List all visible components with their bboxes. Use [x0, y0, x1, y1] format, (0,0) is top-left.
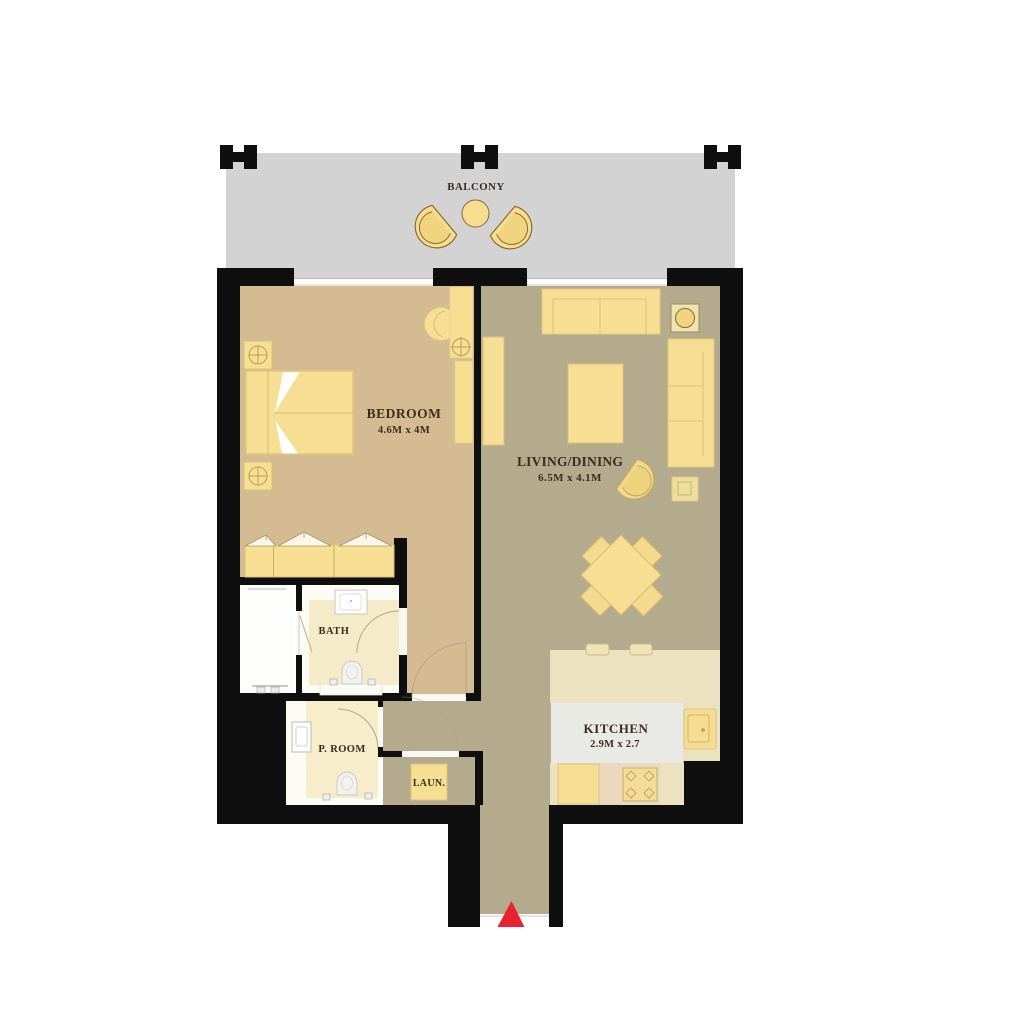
svg-text:LIVING/DINING: LIVING/DINING: [517, 454, 623, 469]
svg-text:KITCHEN: KITCHEN: [584, 721, 649, 736]
svg-text:P. ROOM: P. ROOM: [318, 744, 365, 755]
svg-text:6.5M x 4.1M: 6.5M x 4.1M: [538, 472, 602, 484]
svg-text:BEDROOM: BEDROOM: [367, 406, 442, 421]
svg-text:LAUN.: LAUN.: [413, 778, 446, 789]
svg-text:4.6M x 4M: 4.6M x 4M: [378, 425, 430, 436]
svg-text:BALCONY: BALCONY: [447, 181, 505, 193]
svg-text:2.9M x 2.7: 2.9M x 2.7: [590, 739, 640, 750]
svg-text:BATH: BATH: [319, 626, 350, 637]
